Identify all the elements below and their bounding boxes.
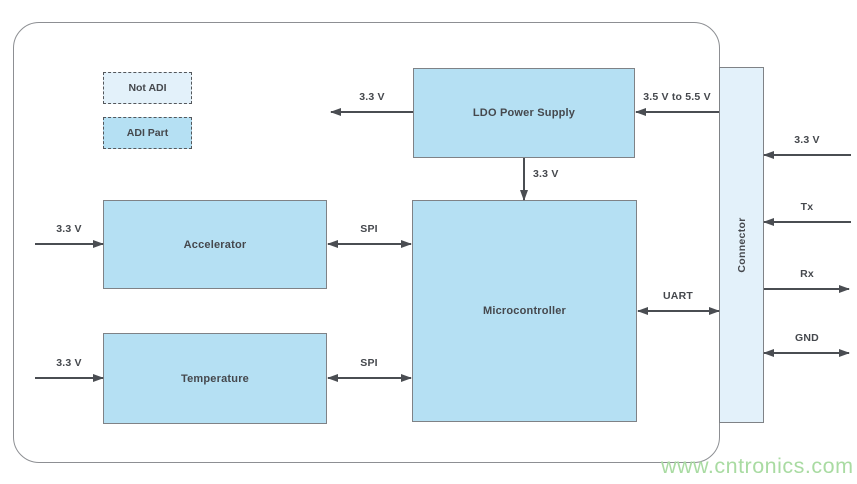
arrow-temperature-spi: [328, 377, 411, 379]
arrowhead-right-icon: [839, 349, 850, 357]
label-connector-supply: 3.3 V: [794, 134, 820, 146]
block-microcontroller: Microcontroller: [412, 200, 637, 422]
arrowhead-right-icon: [709, 307, 720, 315]
label-temperature-spi: SPI: [360, 357, 378, 369]
arrowhead-right-icon: [93, 374, 104, 382]
arrow-connector-to-ldo: [636, 111, 719, 113]
arrow-temperature-supply: [35, 377, 103, 379]
label-rx: Rx: [800, 268, 814, 280]
block-accelerator: Accelerator: [103, 200, 327, 289]
arrow-accelerator-supply: [35, 243, 103, 245]
legend-adi-part: ADI Part: [103, 117, 192, 149]
legend-not-adi-label: Not ADI: [128, 82, 166, 94]
arrow-rx: [764, 288, 849, 290]
legend-not-adi: Not ADI: [103, 72, 192, 104]
arrow-ldo-to-microcontroller: [523, 158, 525, 200]
arrowhead-left-icon: [327, 374, 338, 382]
arrowhead-left-icon: [763, 218, 774, 226]
label-accelerator-spi: SPI: [360, 223, 378, 235]
arrowhead-left-icon: [637, 307, 648, 315]
block-ldo-label: LDO Power Supply: [473, 107, 575, 119]
arrowhead-down-icon: [520, 190, 528, 201]
arrow-gnd: [764, 352, 849, 354]
label-temperature-supply: 3.3 V: [56, 357, 82, 369]
arrowhead-left-icon: [763, 349, 774, 357]
block-connector-label: Connector: [736, 217, 748, 272]
label-ldo-input-range: 3.5 V to 5.5 V: [643, 91, 711, 103]
arrowhead-right-icon: [401, 240, 412, 248]
arrow-uart: [638, 310, 719, 312]
block-temperature: Temperature: [103, 333, 327, 424]
block-ldo-power-supply: LDO Power Supply: [413, 68, 635, 158]
legend-adi-part-label: ADI Part: [127, 127, 168, 139]
diagram-canvas: Not ADI ADI Part LDO Power Supply Accele…: [0, 0, 857, 484]
arrowhead-left-icon: [330, 108, 341, 116]
label-ldo-to-micro: 3.3 V: [533, 168, 559, 180]
arrowhead-right-icon: [93, 240, 104, 248]
label-ldo-3v3-out: 3.3 V: [359, 91, 385, 103]
arrow-accelerator-spi: [328, 243, 411, 245]
arrow-connector-supply: [764, 154, 851, 156]
arrowhead-left-icon: [763, 151, 774, 159]
label-uart: UART: [663, 290, 693, 302]
arrowhead-right-icon: [839, 285, 850, 293]
block-microcontroller-label: Microcontroller: [483, 305, 566, 317]
arrowhead-left-icon: [327, 240, 338, 248]
arrow-tx: [764, 221, 851, 223]
watermark-text: www.cntronics.com: [661, 454, 854, 479]
arrowhead-left-icon: [635, 108, 646, 116]
label-gnd: GND: [795, 332, 819, 344]
arrowhead-right-icon: [401, 374, 412, 382]
block-connector: Connector: [719, 67, 764, 423]
block-temperature-label: Temperature: [181, 373, 249, 385]
arrow-ldo-3v3-out: [331, 111, 413, 113]
label-tx: Tx: [801, 201, 814, 213]
label-accelerator-supply: 3.3 V: [56, 223, 82, 235]
block-accelerator-label: Accelerator: [184, 239, 247, 251]
